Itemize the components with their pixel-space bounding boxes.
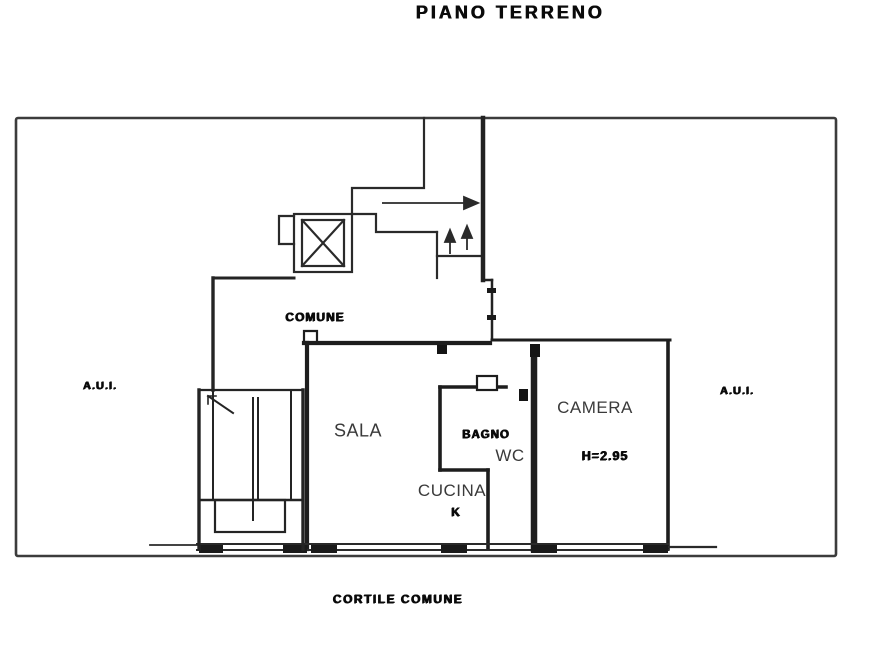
staircase — [199, 390, 303, 549]
elevator-x-mark — [302, 220, 344, 266]
stair-core-walls — [352, 118, 481, 278]
door-arrow — [382, 197, 478, 209]
bottom-wall — [150, 544, 716, 550]
door-tabs — [437, 344, 540, 401]
label-wc: WC — [495, 446, 524, 466]
label-height-note: H=2.95 — [582, 449, 629, 463]
label-kitchen-k: K — [451, 505, 461, 519]
elevator-shaft — [279, 214, 352, 272]
label-aui-right: A.U.I. — [720, 385, 754, 397]
label-camera: CAMERA — [557, 398, 633, 418]
label-sala: SALA — [334, 421, 382, 442]
label-cortile-comune: CORTILE COMUNE — [333, 592, 463, 606]
step-up-arrows — [445, 226, 472, 254]
stair-direction-arrow — [208, 396, 233, 413]
bagno-vent-box — [477, 376, 497, 390]
label-comune: COMUNE — [285, 310, 344, 324]
label-aui-left: A.U.I. — [83, 380, 117, 392]
floor-plan-drawing — [0, 0, 888, 647]
label-bagno: BAGNO — [462, 429, 510, 441]
core-thick-wall — [483, 118, 492, 340]
label-cucina: CUCINA — [418, 481, 486, 501]
floor-plan-page: PIANO TERRENO — [0, 0, 888, 647]
hall-walls — [213, 278, 294, 390]
